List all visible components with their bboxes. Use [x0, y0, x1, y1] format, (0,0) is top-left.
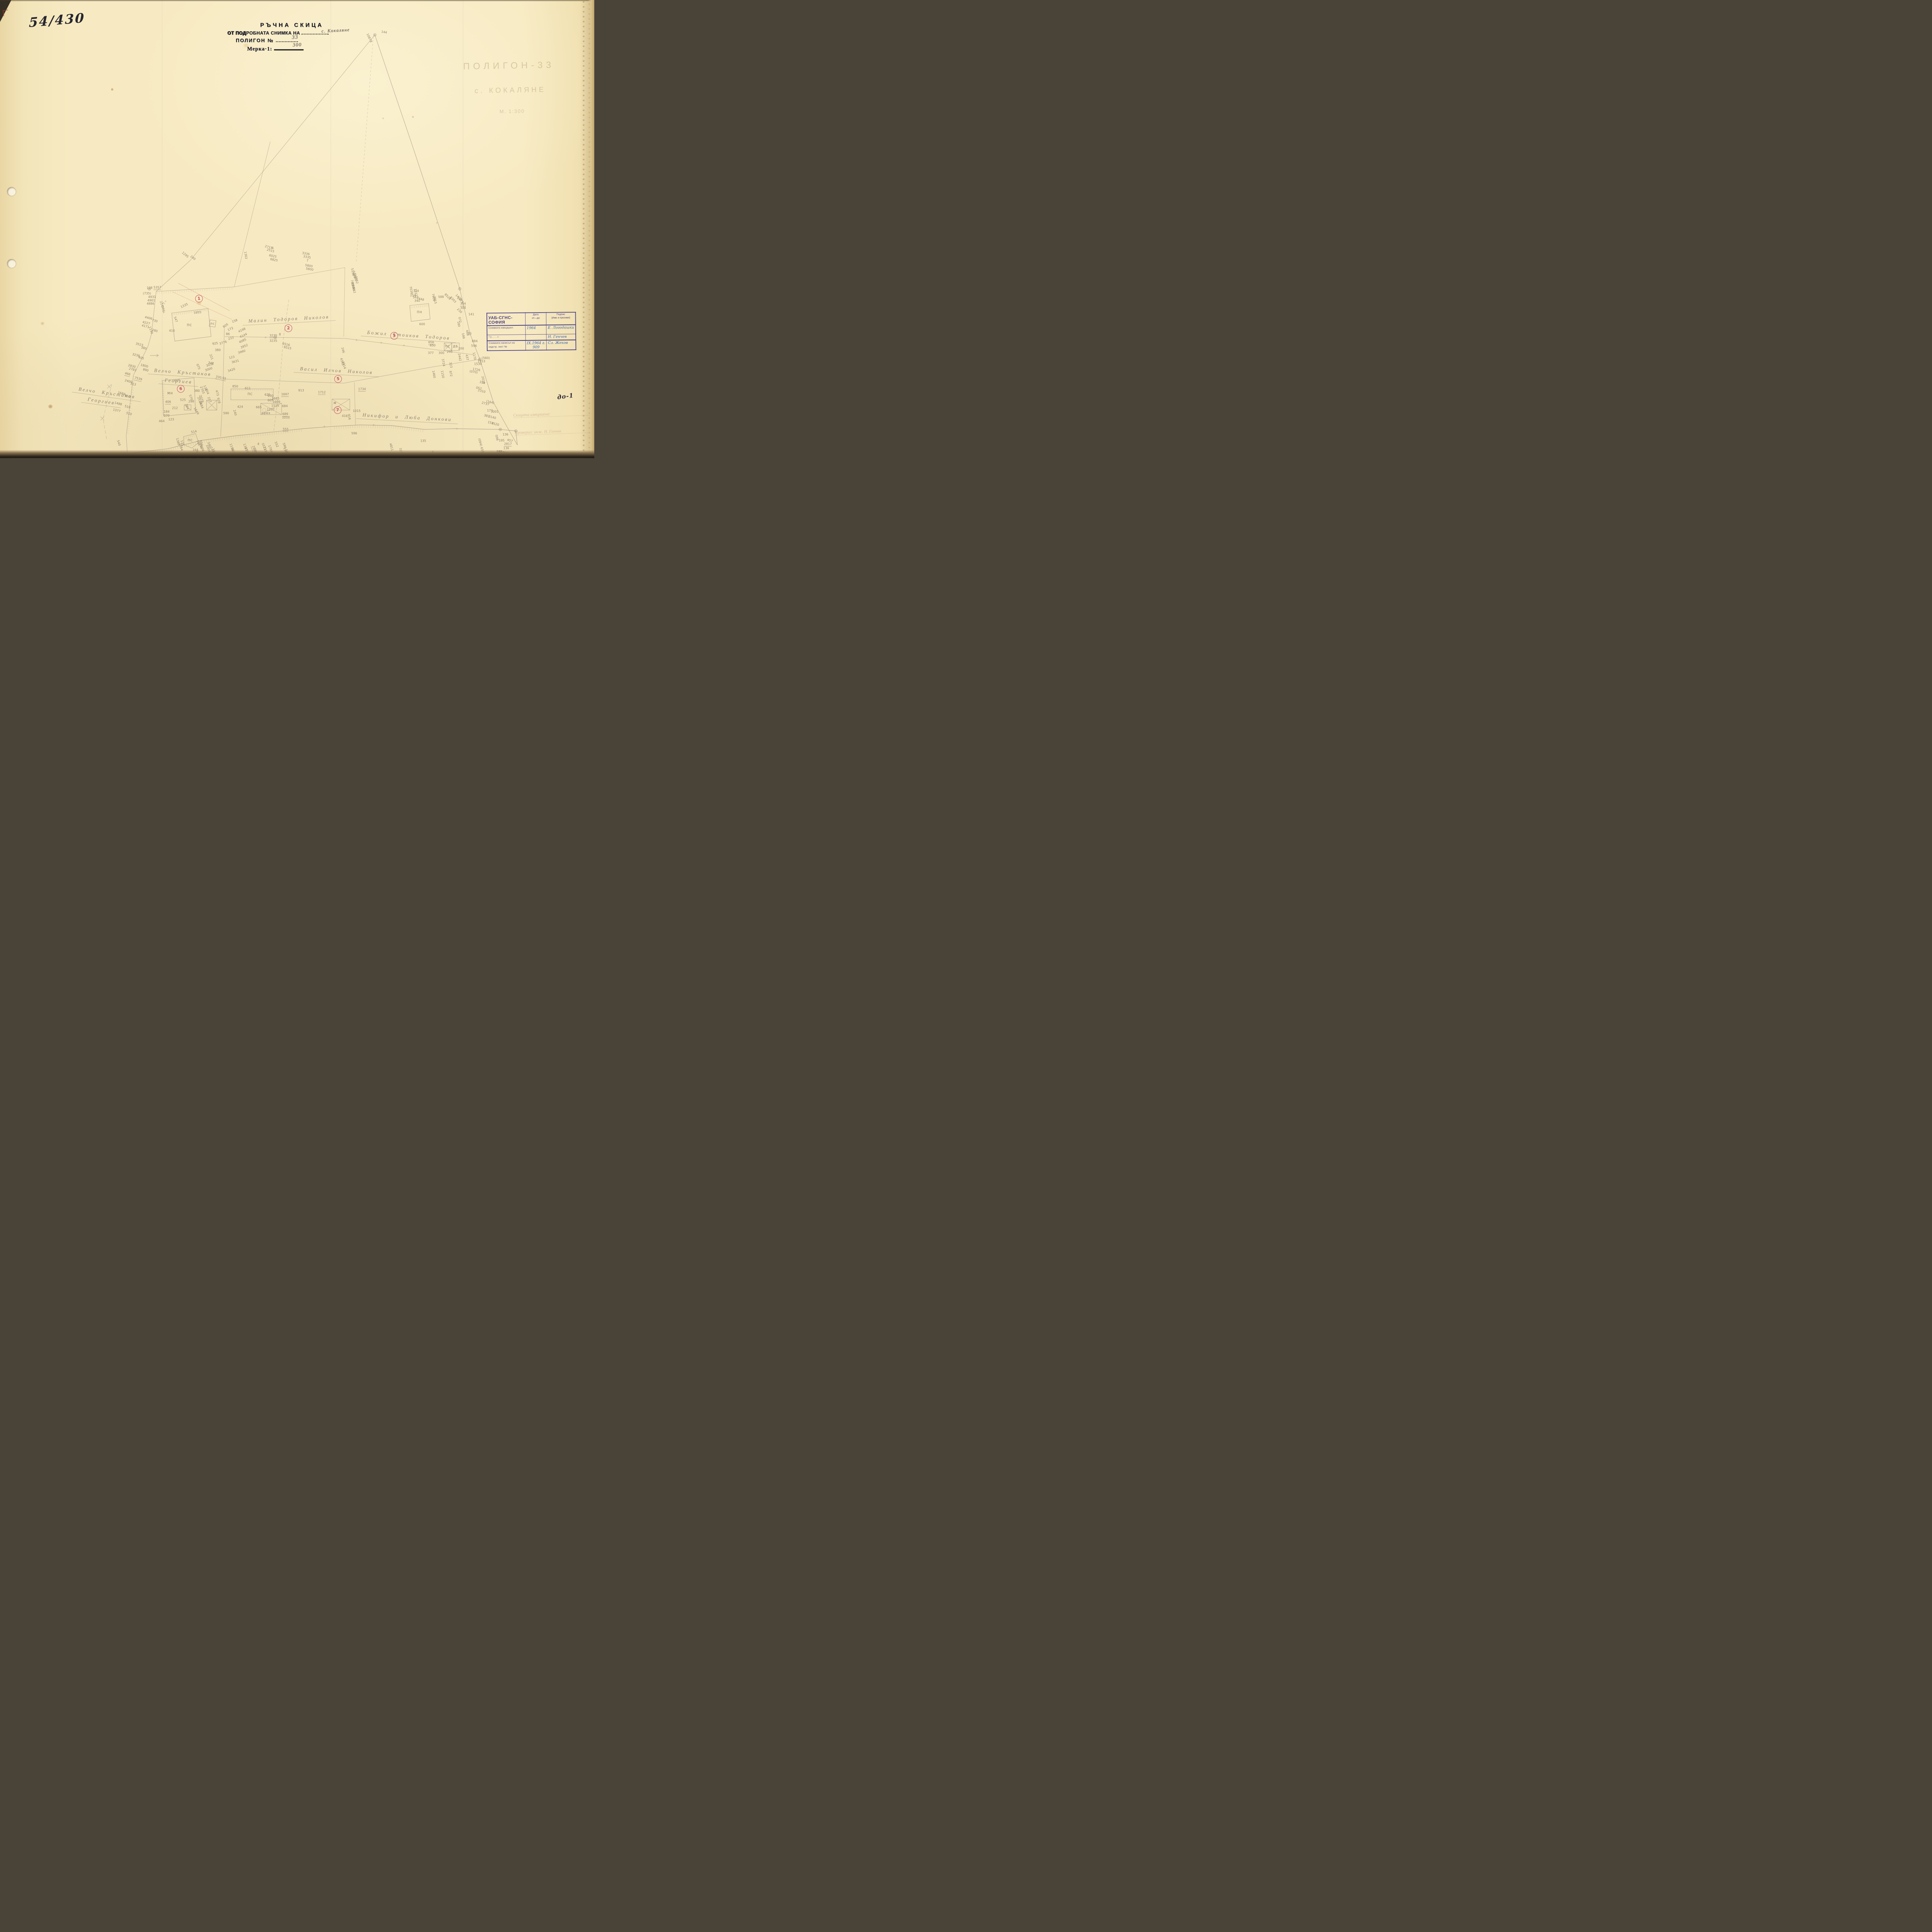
measurement: 730 [151, 318, 158, 323]
measurement: 323 [449, 362, 453, 368]
building-label: ПС [188, 439, 193, 442]
measurement: 1377 [112, 408, 121, 413]
film-perforation-edge [580, 0, 594, 458]
measurement: 217 [207, 396, 212, 403]
measurement: 141 [468, 313, 474, 316]
measurement: 184 [164, 410, 170, 413]
parcel-number-5: 5 [334, 375, 342, 383]
measurement: Г [307, 259, 309, 262]
measurement: 2952 [354, 276, 359, 284]
stamp-row1-signature: Е. Логодашки [546, 325, 576, 334]
measurement: 555 [283, 427, 289, 432]
measurement: 10878 [366, 33, 373, 43]
measurement: 195 [499, 439, 505, 442]
measurement: 4144 [239, 332, 248, 338]
measurement: 525 [180, 398, 186, 402]
stamp-col-date: Датаот—до [525, 313, 546, 325]
measurement: 123 [168, 418, 174, 421]
measurement: 510 [126, 411, 133, 416]
measurement: 221 [209, 354, 214, 360]
measurement: 4886 [147, 302, 155, 306]
measurement: 075 [196, 363, 201, 370]
measurement: 144 [381, 30, 387, 34]
measurement: 7539 [134, 376, 143, 382]
measurement: 7815 [433, 296, 437, 304]
measurement: 3140 [488, 415, 497, 420]
measurement: 2442 [457, 353, 462, 361]
paper-sheet: 54/430 РЪЧНА СКИЦА ОТ ПОДРОБНАТА СНИМКА … [0, 0, 594, 458]
parcel-number-7: 7 [333, 406, 342, 414]
measurement: 380 [194, 389, 200, 393]
stamp-row2-label: Пр……л: [487, 334, 526, 341]
measurement: 2310 [478, 389, 486, 394]
measurement: 6 [272, 247, 274, 250]
measurement: (560) [482, 356, 490, 360]
measurement: 3776 [219, 340, 228, 346]
measurement: 298 [188, 400, 194, 403]
parcel-number-1: 1 [195, 294, 203, 303]
stamp-col-signature: Подпис|Име и презиме| [546, 312, 576, 325]
measurement: 1530 [474, 362, 482, 366]
measurement: 884 [472, 340, 478, 343]
measurement: 240 [233, 410, 237, 416]
scan-bottom-edge [0, 450, 594, 458]
measurement: 1460 [432, 370, 436, 378]
measurement: 1295 [181, 251, 189, 259]
building-label: ПС [445, 345, 450, 348]
measurement: 3631 [231, 359, 240, 364]
measurement: 1685 [272, 397, 279, 400]
measurement: 304 [460, 302, 466, 306]
measurement: 510 [124, 405, 131, 409]
measurement: 136 [503, 433, 509, 436]
measurement: 240 [190, 255, 196, 261]
measurement: 3724 [441, 359, 446, 367]
measurement: 340 [414, 299, 420, 303]
building-label: МН [167, 392, 173, 395]
building-label: ПН [417, 311, 422, 314]
measurement: 1010 [282, 416, 290, 419]
stamp-row2-date [526, 334, 547, 340]
stamp-row3-signature: Сл. Жеков [547, 340, 576, 350]
stamp-org: УАБ-СГНС-СОФИЯ [487, 313, 526, 325]
measurement: 1335 [180, 303, 189, 309]
measurement: 684 [282, 405, 288, 408]
measurement: 200 [458, 347, 464, 350]
stamp-row1-date: 1964 [526, 325, 547, 334]
measurement: 173 [227, 326, 234, 332]
measurement: 8 [279, 333, 281, 336]
measurement: 3235 [269, 334, 277, 338]
measurement: 1150 [440, 370, 445, 378]
measurement: 4931 [148, 295, 156, 299]
registration-stamp: УАБ-СГНС-СОФИЯ Датаот—до Подпис|Име и пр… [486, 312, 577, 351]
measurement: 313 [130, 382, 136, 386]
measurement: 464 [159, 420, 165, 423]
building-label: ПС [187, 323, 192, 327]
measurement: 2817 [504, 442, 512, 447]
parcel-owner-label: Божил Стоиков Тодоров [361, 329, 456, 343]
measurement: 158 [231, 318, 238, 323]
measurement: 1237 [267, 408, 275, 411]
measurement: 3520 [491, 422, 500, 427]
measurement: 925 [212, 342, 218, 346]
measurement: 123 [229, 355, 235, 360]
measurement: 424 [237, 405, 243, 409]
parcel-owner-label: Георгиев [158, 377, 199, 387]
measurement: 850 [232, 385, 238, 388]
measurement: 86 [226, 332, 230, 336]
measurement: 563 [413, 296, 418, 299]
measurement: 4901 [148, 299, 155, 302]
measurement: 135 [420, 439, 426, 443]
measurement: 590 [223, 412, 229, 415]
measurement: 199 [461, 333, 465, 339]
measurement: 5357 [153, 286, 161, 290]
measurement: 547 [173, 316, 178, 323]
building-label: орех [262, 412, 270, 415]
measurement: 540 [116, 440, 121, 446]
measurement: 611 [245, 386, 251, 390]
measurement: 928 [216, 397, 221, 404]
measurement: 2783 [128, 367, 137, 372]
measurement: 301 [161, 306, 166, 312]
measurement: 488 [465, 330, 469, 336]
measurement: 6515 [284, 345, 292, 350]
measurement: 1712 [318, 391, 326, 395]
building-label: М [333, 401, 337, 405]
measurement: 714 [413, 289, 419, 293]
measurement: 588 [438, 295, 444, 299]
measurement: 1697 [281, 393, 289, 397]
measurement: 596 [471, 344, 477, 348]
measurement: 4406 [145, 315, 153, 320]
measurement: 552 [274, 441, 279, 448]
measurement: 466 [124, 371, 131, 377]
measurement: 473 [215, 390, 219, 396]
measurement: 3952 [240, 343, 248, 349]
measurement: 805 [222, 323, 229, 329]
measurement: 1302 [243, 251, 248, 259]
measurement: 650 [430, 344, 435, 347]
measurement: 406 [165, 400, 171, 405]
measurement: 437 [465, 354, 469, 361]
measurement: 380 [141, 346, 147, 350]
measurement: 1609 [272, 400, 280, 404]
measurement: 4 [257, 442, 259, 446]
measurement: 212 [172, 406, 178, 410]
measurement: 295 [447, 350, 452, 354]
measurement: 916 [347, 414, 351, 420]
parcel-owner-label: Никифор и Люба Донкови [356, 412, 458, 424]
stamp-row2-signature: Н. Генчев [546, 334, 576, 340]
measurement: 1515 [271, 404, 279, 408]
scanned-cadastral-sketch: 54/430 РЪЧНА СКИЦА ОТ ПОДРОБНАТА СНИМКА … [0, 0, 594, 458]
measurement: 380 [215, 348, 221, 352]
measurement: 364 [184, 403, 189, 410]
measurement: 3001 [491, 410, 498, 413]
parcel-number-6: 6 [177, 385, 185, 393]
measurement: 596 [351, 432, 357, 435]
measurement: 3235 [269, 339, 277, 343]
measurement: 254 [204, 388, 209, 395]
measurement: 625 [265, 393, 270, 396]
measurement: 872 [449, 371, 453, 377]
measurement: (735) [143, 292, 151, 295]
parcel-owner-label: Малин Тодоров Николов [242, 313, 336, 325]
measurement: 233 [228, 336, 234, 340]
measurement: 514 [191, 430, 197, 434]
measurement: 942 [352, 287, 356, 293]
measurement: 6825 [270, 257, 278, 262]
measurement: 300 [439, 351, 444, 355]
measurement: 246 [340, 347, 345, 354]
measurement: 600 [419, 323, 425, 326]
annotation-layer: 129524013022715251566025682533363335Г580… [0, 0, 594, 458]
building-label: ДБ [453, 345, 458, 348]
measurement: 405 [138, 355, 145, 360]
measurement: 1655 [194, 310, 202, 315]
stamp-row3-label: Снимката нанесъл накадстр. лист № [487, 340, 526, 351]
measurement: 377 [428, 351, 434, 355]
measurement: 304 [460, 306, 466, 310]
measurement: 070 [164, 414, 170, 417]
measurement: 1800 [140, 363, 149, 368]
measurement: 128 [147, 286, 153, 290]
parcel-number-2: 2 [284, 324, 293, 332]
measurement: 913 [298, 389, 304, 392]
measurement: 410 [169, 329, 175, 332]
building-label: ПС [248, 393, 253, 396]
measurement: 3960 [238, 349, 246, 355]
measurement: 5800 [306, 267, 314, 272]
measurement: 1734 [358, 387, 366, 391]
building-label: пс [211, 322, 215, 325]
measurement: 665 [256, 406, 262, 409]
measurement: 3420 [227, 367, 236, 373]
measurement: 1649 [193, 407, 200, 415]
stamp-row1-label: Снимката извършил: [487, 325, 526, 335]
measurement: 4085 [238, 338, 247, 344]
measurement: 136 [503, 446, 509, 450]
stamp-row3-date: IX.1964 г.909 [526, 340, 547, 350]
measurement: 1170 [472, 352, 477, 360]
